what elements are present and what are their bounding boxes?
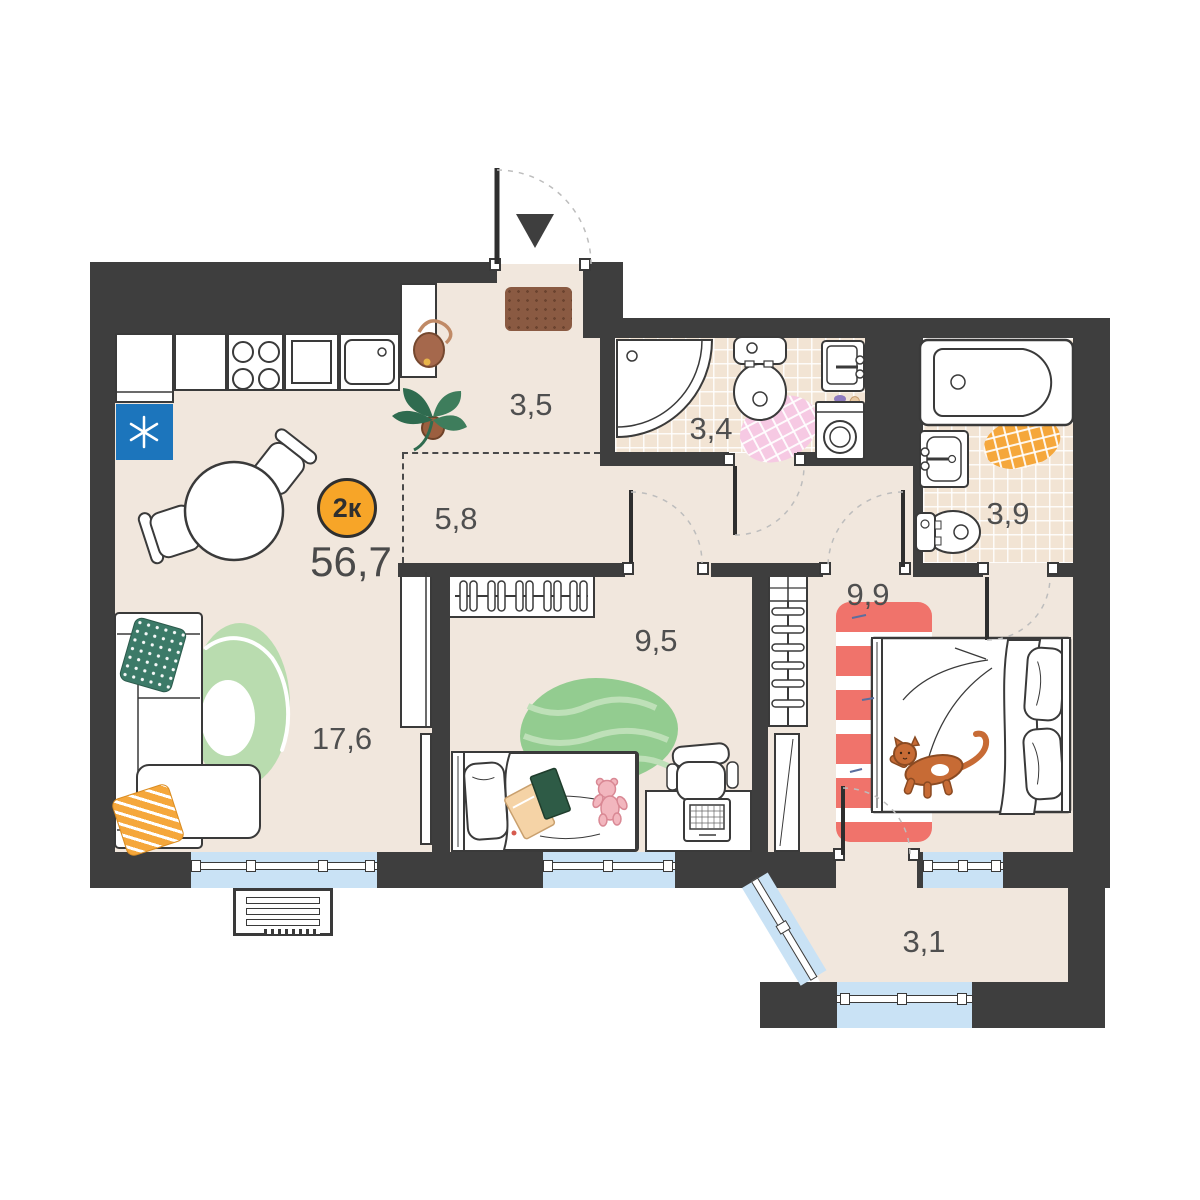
fixtures-overlay bbox=[0, 0, 1200, 1200]
dining-table bbox=[185, 462, 283, 560]
apartment-type-badge: 2к bbox=[317, 478, 377, 538]
wc-door bbox=[735, 466, 804, 535]
snowflake-icon bbox=[131, 417, 157, 447]
plant-icon bbox=[392, 388, 467, 450]
kitchen-sink bbox=[345, 340, 394, 384]
rug-marks bbox=[850, 615, 874, 772]
laptop-icon bbox=[684, 799, 730, 841]
bathroom-sink bbox=[920, 431, 968, 487]
bathroom-door bbox=[987, 577, 1050, 640]
stove-burners bbox=[233, 342, 279, 389]
floor-plan: 2к 56,7 3,5 5,8 3,4 3,9 9,9 9,5 17,6 3,1 bbox=[0, 0, 1200, 1200]
worktop-inset bbox=[292, 341, 331, 383]
double-bed bbox=[872, 638, 1070, 814]
living-ring-rug bbox=[190, 623, 290, 787]
washing-machine bbox=[816, 402, 864, 459]
bathtub bbox=[920, 340, 1073, 425]
room-area-hallway: 3,5 bbox=[486, 387, 576, 423]
desk-chair bbox=[667, 743, 738, 800]
room-area-bedroom: 9,9 bbox=[823, 577, 913, 613]
wc-sink bbox=[822, 341, 864, 391]
kids-wardrobe-hangers bbox=[455, 581, 588, 611]
room-area-corridor: 5,8 bbox=[411, 501, 501, 537]
room-area-balcony: 3,1 bbox=[879, 924, 969, 960]
mirror-line bbox=[780, 739, 793, 846]
room-area-wc: 3,4 bbox=[666, 411, 756, 447]
room-area-bathroom: 3,9 bbox=[963, 496, 1053, 532]
kids-room-door bbox=[631, 490, 702, 563]
total-area-label: 56,7 bbox=[291, 538, 411, 586]
room-area-kids: 9,5 bbox=[611, 623, 701, 659]
bedroom-door bbox=[828, 490, 903, 567]
toilet bbox=[734, 337, 786, 420]
entrance-arrow-icon bbox=[516, 214, 554, 248]
hallway-bag bbox=[414, 321, 451, 367]
bedroom-wardrobe-hangers bbox=[768, 575, 808, 727]
room-area-living: 17,6 bbox=[297, 721, 387, 757]
